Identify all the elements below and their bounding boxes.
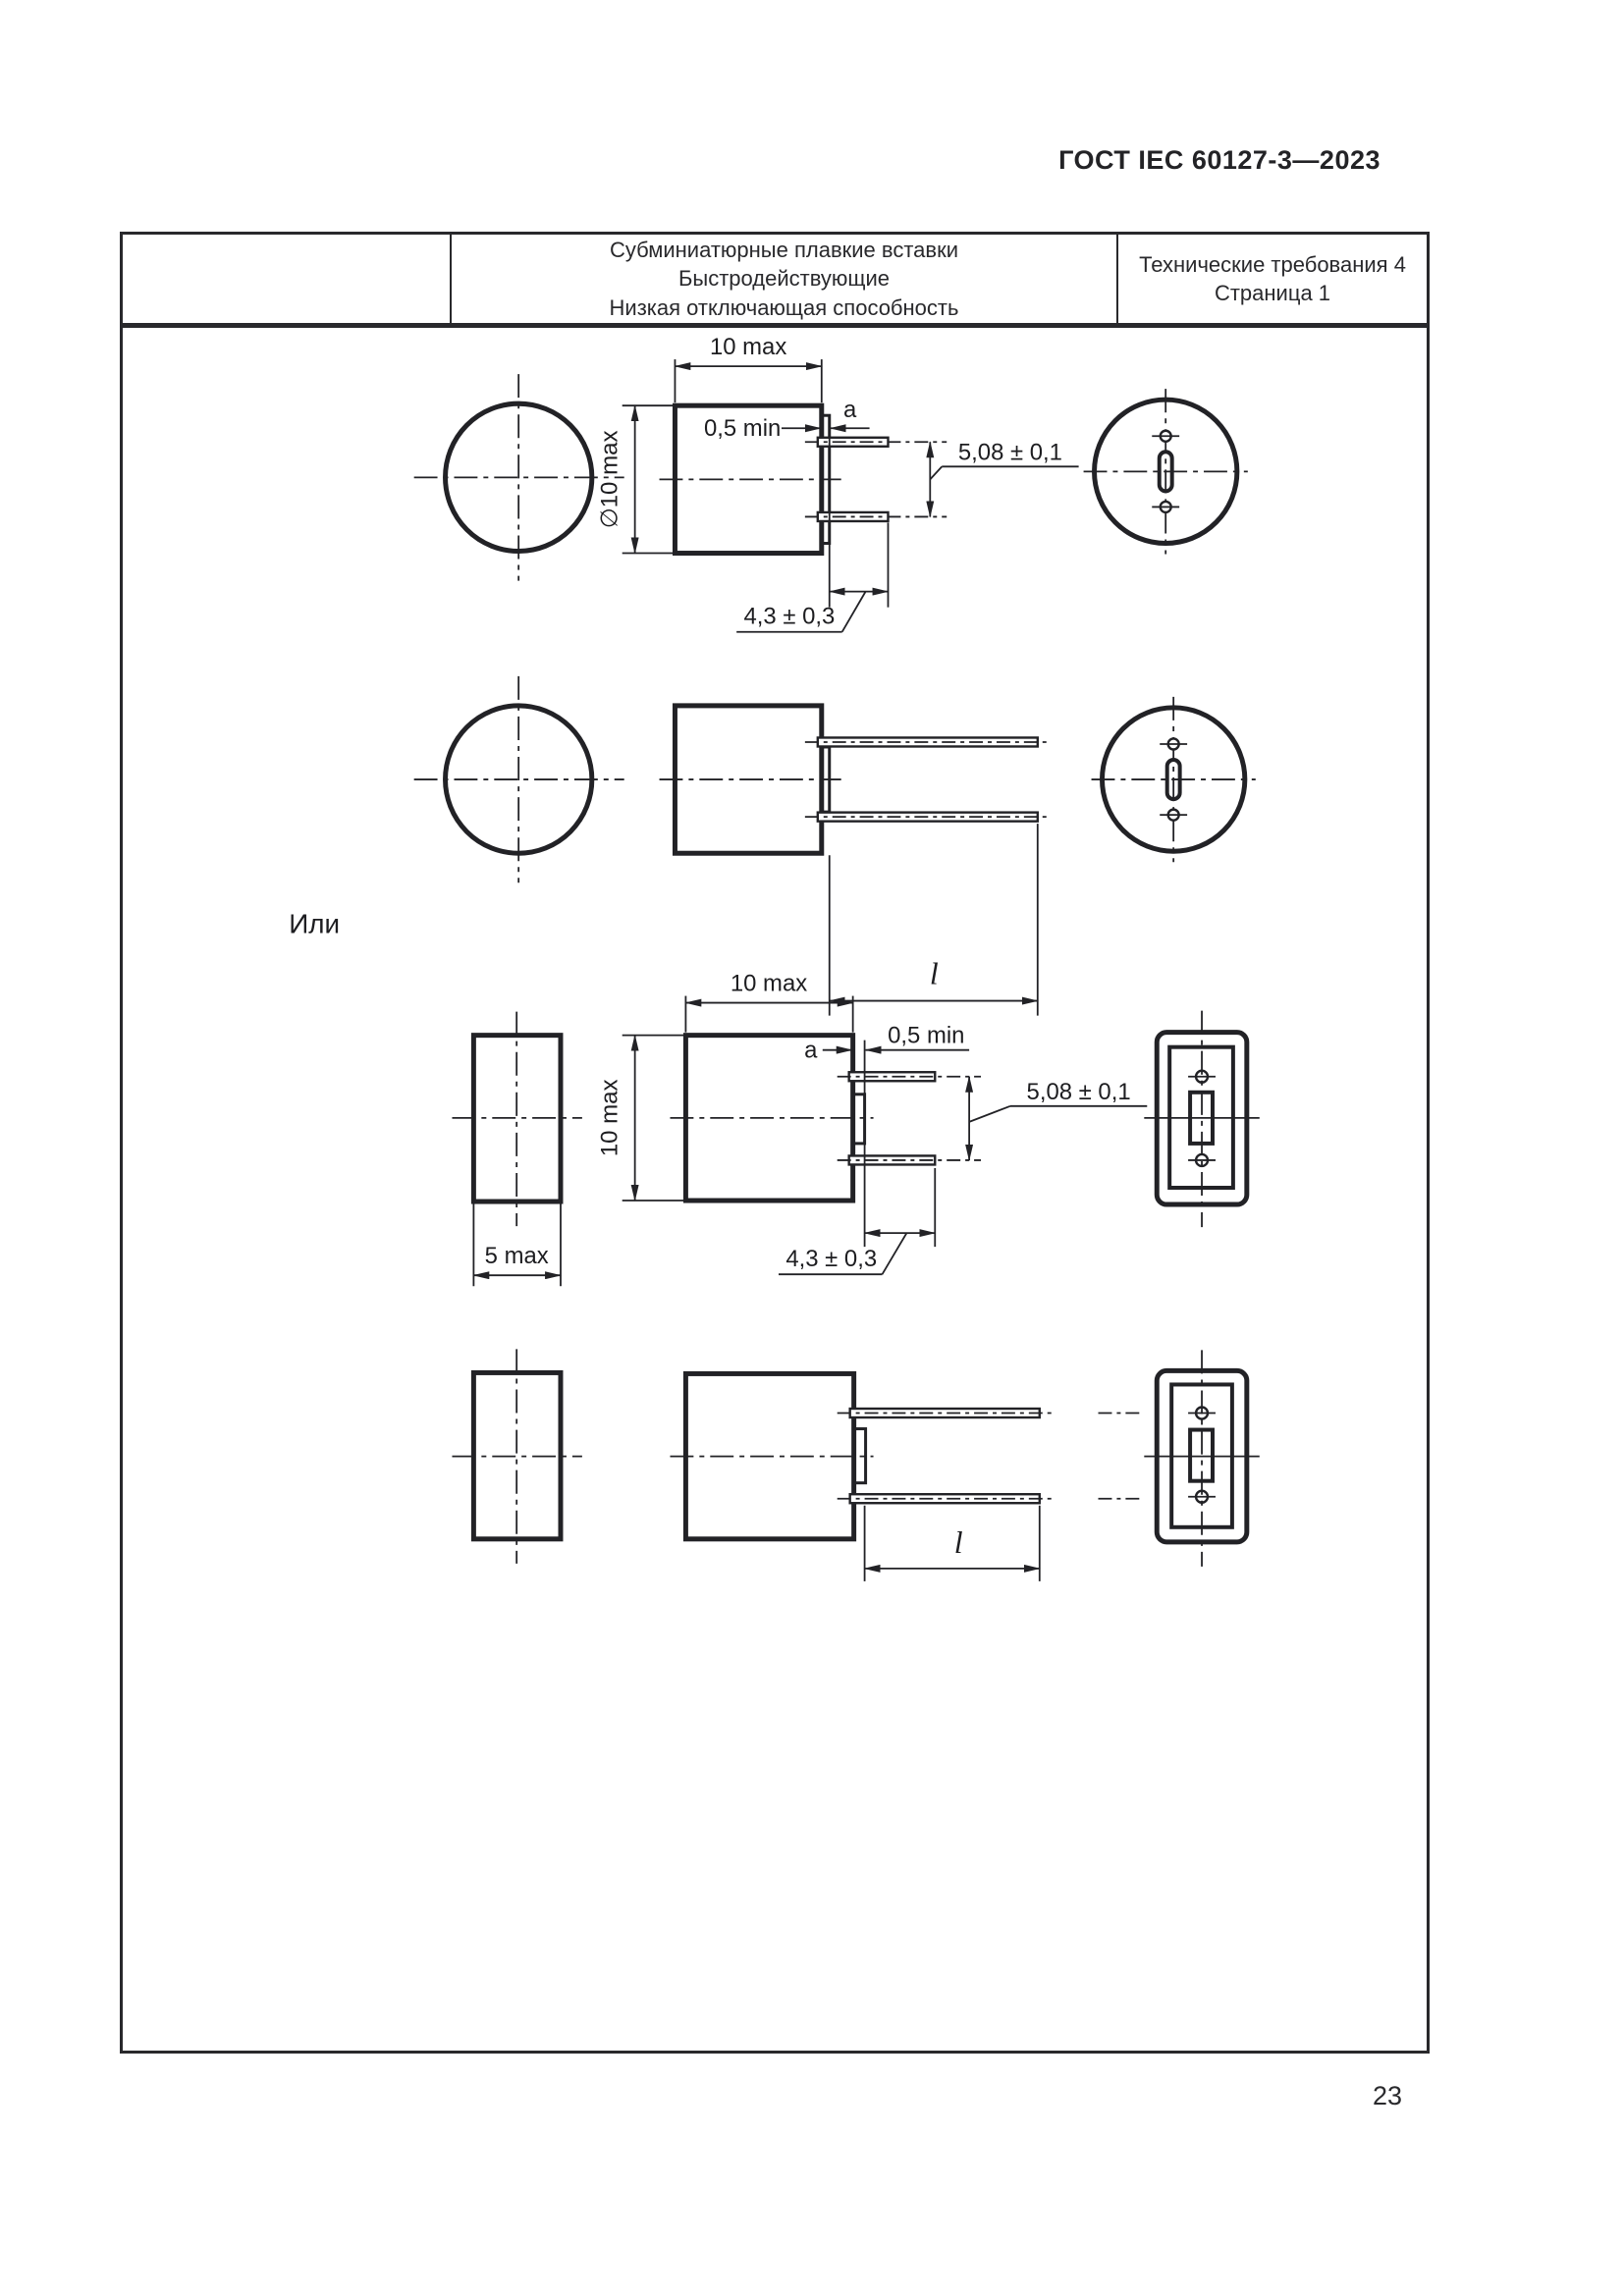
dim-height-10max: 10 max <box>597 1079 623 1156</box>
dim-a-label: a <box>843 397 857 423</box>
dim-length-l-rect: l <box>954 1525 963 1560</box>
dim-gap-05min-rect: 0,5 min <box>888 1023 964 1049</box>
technical-drawing-area: 10 max ∅10 max 0,5 min a 5,08 ± 0,1 <box>123 323 1427 2051</box>
header-cell-empty <box>123 235 450 323</box>
rect-fuse-long-leads-views: l <box>452 1349 1259 1581</box>
header-cell-requirements: Технические требования 4 Страница 1 <box>1118 235 1427 323</box>
dim-pitch-508: 5,08 ± 0,1 <box>958 439 1062 465</box>
dim-gap-05min: 0,5 min <box>704 415 781 442</box>
fuse-capacity-line: Низкая отключающая способность <box>610 294 959 322</box>
dim-lead-43-rect: 4,3 ± 0,3 <box>785 1246 877 1272</box>
round-fuse-short-pins-views: 10 max ∅10 max 0,5 min a 5,08 ± 0,1 <box>414 334 1248 632</box>
dim-thickness-5max: 5 max <box>485 1243 549 1269</box>
header-cell-title: Субминиатюрные плавкие вставки Быстродей… <box>450 235 1118 323</box>
technical-drawing: 10 max ∅10 max 0,5 min a 5,08 ± 0,1 <box>123 323 1427 2051</box>
dim-length-l: l <box>930 956 939 990</box>
fuse-speed-line: Быстродействующие <box>678 264 890 293</box>
round-fuse-long-leads-views: l <box>414 676 1256 1016</box>
dim-a-label-rect: a <box>804 1038 818 1064</box>
standard-title: ГОСТ IEC 60127-3—2023 <box>1058 145 1380 176</box>
document-page: ГОСТ IEC 60127-3—2023 Субминиатюрные пла… <box>0 0 1624 2296</box>
rect-fuse-short-pins-views: 5 max 10 max <box>452 970 1259 1286</box>
dim-diameter-10max: ∅10 max <box>597 430 623 528</box>
requirements-line: Технические требования 4 <box>1139 250 1406 279</box>
dim-width-10max: 10 max <box>710 334 786 360</box>
dim-width-10max-rect: 10 max <box>731 970 807 996</box>
dim-pitch-508-rect: 5,08 ± 0,1 <box>1027 1079 1131 1105</box>
drawing-sheet-frame: Субминиатюрные плавкие вставки Быстродей… <box>120 232 1430 2054</box>
sheet-header-row: Субминиатюрные плавкие вставки Быстродей… <box>123 235 1427 328</box>
page-number: 23 <box>1373 2081 1402 2111</box>
page-line: Страница 1 <box>1215 279 1330 307</box>
dim-lead-43: 4,3 ± 0,3 <box>744 604 836 630</box>
fuse-type-line: Субминиатюрные плавкие вставки <box>610 236 958 264</box>
or-label: Или <box>289 908 340 938</box>
